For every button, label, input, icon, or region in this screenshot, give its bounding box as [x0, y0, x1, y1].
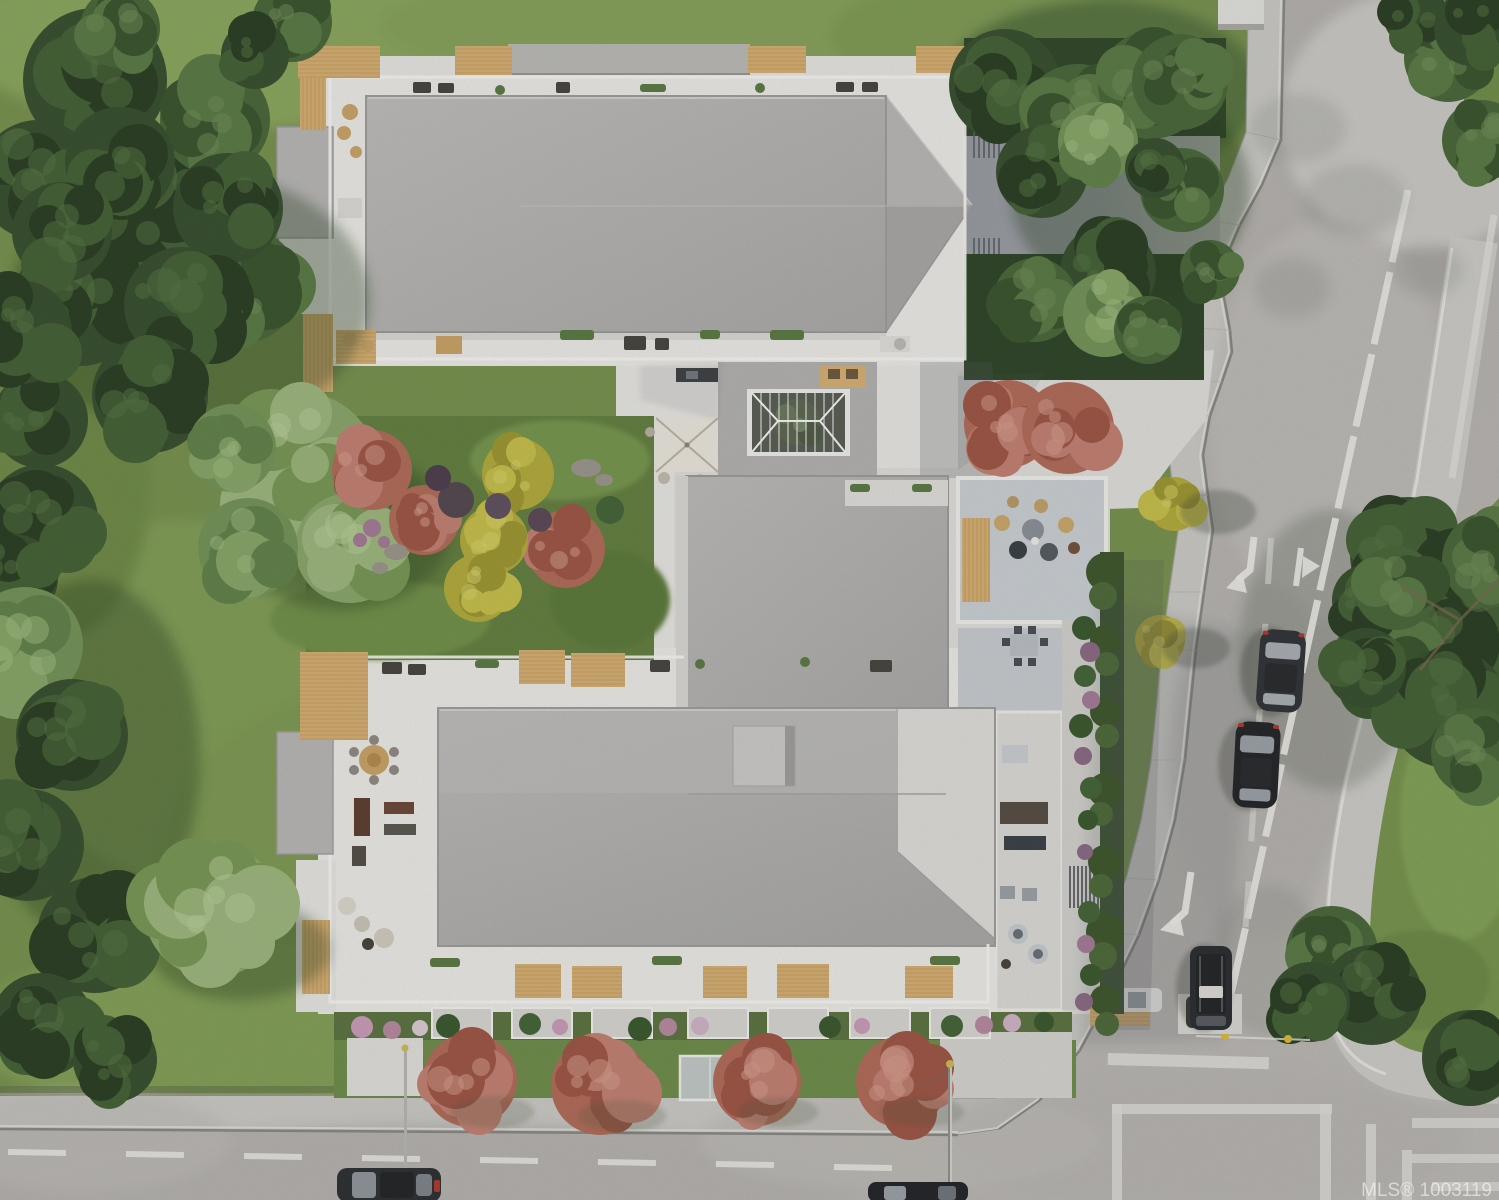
- svg-text:MLS® 1003119: MLS® 1003119: [1361, 1180, 1492, 1200]
